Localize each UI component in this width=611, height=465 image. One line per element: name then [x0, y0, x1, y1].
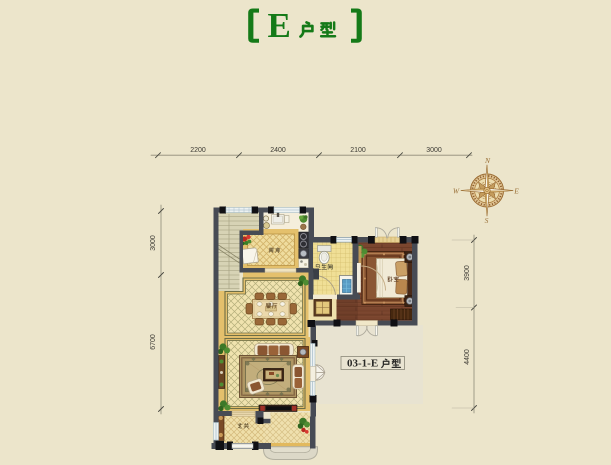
- svg-text:6700: 6700: [150, 334, 157, 350]
- svg-text:2200: 2200: [190, 147, 206, 154]
- svg-text:E: E: [268, 6, 291, 45]
- svg-text:E: E: [513, 187, 519, 196]
- svg-text:3000: 3000: [150, 235, 157, 251]
- svg-text:W: W: [453, 187, 460, 196]
- svg-text:N: N: [484, 156, 491, 165]
- svg-text:2400: 2400: [270, 147, 286, 154]
- svg-text:3000: 3000: [426, 147, 442, 154]
- svg-text:4400: 4400: [464, 349, 471, 365]
- svg-text:2100: 2100: [350, 147, 366, 154]
- svg-text:3900: 3900: [464, 265, 471, 281]
- svg-text:S: S: [485, 216, 489, 225]
- svg-text:03-1-E: 03-1-E: [347, 357, 378, 369]
